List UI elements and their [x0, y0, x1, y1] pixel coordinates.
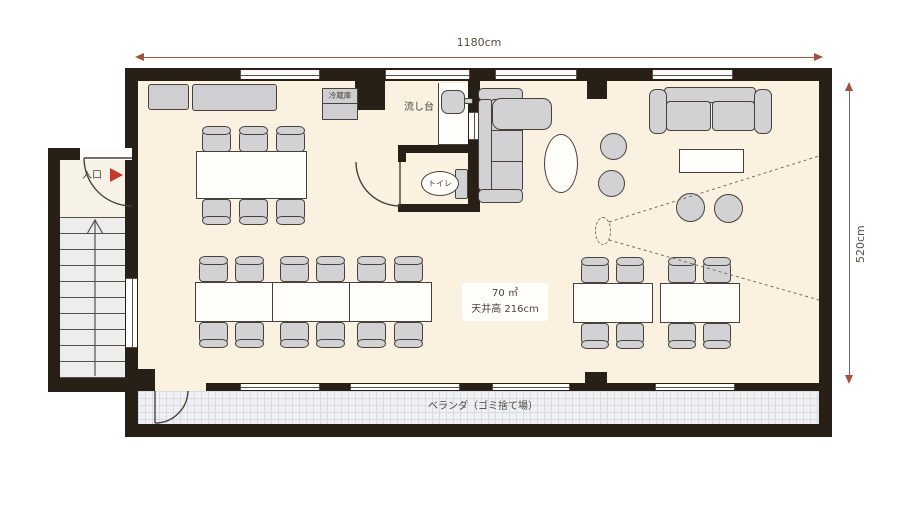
chair — [276, 199, 305, 224]
window — [495, 70, 577, 79]
sofa-armrest — [754, 89, 772, 134]
chair — [357, 257, 386, 282]
chair — [668, 323, 696, 348]
chair — [199, 257, 228, 282]
window — [350, 384, 460, 390]
sofa-l-armrest — [478, 189, 523, 203]
oval-table — [544, 134, 578, 193]
chair — [581, 258, 609, 283]
chair — [276, 127, 305, 152]
chair — [235, 322, 264, 347]
dining-table — [660, 283, 740, 323]
arrow-right-icon — [814, 53, 823, 61]
chair — [239, 199, 268, 224]
width-dimension-label: 1180cm — [139, 36, 819, 49]
sofa-l-chaise — [492, 98, 552, 130]
veranda-label: ベランダ（ゴミ捨て場） — [383, 400, 583, 413]
toilet-wall-bottom — [398, 204, 480, 212]
height-dimension-label: 520cm — [854, 203, 869, 263]
wall-bottom — [125, 424, 832, 437]
chair — [199, 322, 228, 347]
ceiling-height-label: 天井高 216cm — [462, 302, 548, 318]
sofa-seam — [492, 130, 522, 131]
arrow-up-icon — [845, 82, 853, 91]
toilet-wall-left — [398, 145, 406, 162]
chair — [235, 257, 264, 282]
chair — [357, 322, 386, 347]
coffee-table — [679, 149, 744, 173]
banquet-table — [195, 282, 274, 322]
chair — [316, 322, 345, 347]
stool — [600, 133, 627, 160]
wall-right — [819, 68, 832, 437]
toilet-label: トイレ — [421, 172, 459, 195]
stool — [598, 170, 625, 197]
window — [492, 384, 570, 390]
viewpoint-marker — [595, 217, 611, 245]
chair — [581, 323, 609, 348]
stairhall-wall-left — [48, 148, 60, 392]
floor-plan: 1180cm 520cm トイレ 冷蔵庫 流し台 入口 — [0, 0, 900, 506]
window — [240, 384, 320, 390]
sofa-seat — [712, 101, 755, 131]
sofa-seam — [492, 161, 522, 162]
chair — [394, 322, 423, 347]
chair — [668, 258, 696, 283]
chair — [280, 322, 309, 347]
stool — [714, 194, 743, 223]
chair — [616, 258, 644, 283]
room-info-card: 70 ㎡ 天井高 216cm — [462, 283, 548, 321]
cabinet — [192, 84, 277, 111]
entrance-door-opening — [80, 148, 132, 160]
entrance-arrow-icon — [110, 168, 123, 182]
toilet-wall-top — [398, 145, 480, 153]
chair — [280, 257, 309, 282]
balcony-door-opening — [155, 383, 206, 391]
refrigerator: 冷蔵庫 — [322, 88, 358, 120]
stool — [676, 193, 705, 222]
room-area-label: 70 ㎡ — [462, 286, 548, 302]
sink-faucet — [464, 98, 473, 104]
chair — [703, 258, 731, 283]
dining-table — [573, 283, 653, 323]
banquet-table — [272, 282, 351, 322]
chair — [239, 127, 268, 152]
chair — [703, 323, 731, 348]
chair — [202, 199, 231, 224]
wall-stub — [585, 372, 607, 383]
banquet-table — [349, 282, 432, 322]
sofa-armrest — [649, 89, 667, 134]
wall-stub — [355, 81, 385, 110]
cabinet — [148, 84, 189, 110]
window — [655, 384, 735, 390]
entrance-label: 入口 — [82, 169, 108, 182]
arrow-down-icon — [845, 375, 853, 384]
chair — [202, 127, 231, 152]
sink-basin — [441, 90, 465, 114]
refrigerator-label: 冷蔵庫 — [323, 89, 357, 104]
window — [240, 70, 320, 79]
stairhall-wall-bottom — [48, 378, 138, 392]
chair — [394, 257, 423, 282]
width-dimension-line — [141, 57, 817, 58]
stairs — [60, 217, 125, 378]
sofa-seat — [666, 101, 711, 131]
dining-table — [196, 151, 307, 199]
window — [126, 278, 137, 348]
wall-stub — [587, 81, 607, 99]
sink-label: 流し台 — [386, 101, 434, 114]
chair — [316, 257, 345, 282]
window — [385, 70, 470, 79]
wall-jog — [138, 369, 155, 391]
height-dimension-line — [849, 90, 850, 376]
window — [652, 70, 733, 79]
arrow-left-icon — [135, 53, 144, 61]
chair — [616, 323, 644, 348]
